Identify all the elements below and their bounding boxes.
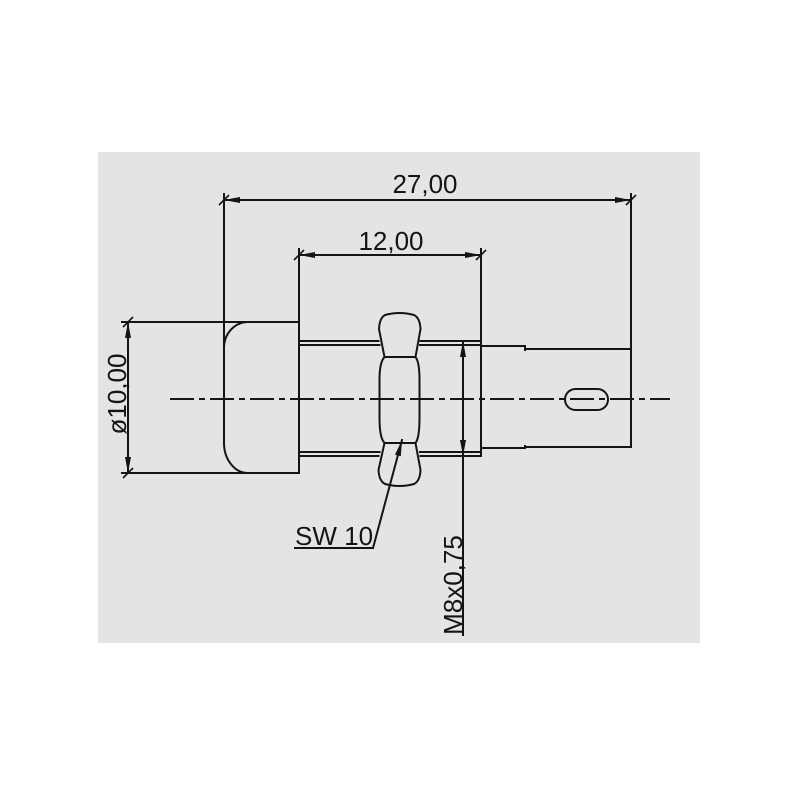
technical-drawing: 27,00 12,00 ø10,00 SW 10 M8x0,75	[0, 0, 800, 800]
label-wrench-size: SW 10	[295, 521, 373, 551]
dim-text-overall-length: 27,00	[392, 169, 457, 199]
screenshot-stage: 27,00 12,00 ø10,00 SW 10 M8x0,75	[0, 0, 800, 800]
label-thread-spec: M8x0,75	[438, 535, 468, 635]
dim-text-head-diameter: ø10,00	[102, 354, 132, 435]
dim-text-body-length: 12,00	[358, 226, 423, 256]
